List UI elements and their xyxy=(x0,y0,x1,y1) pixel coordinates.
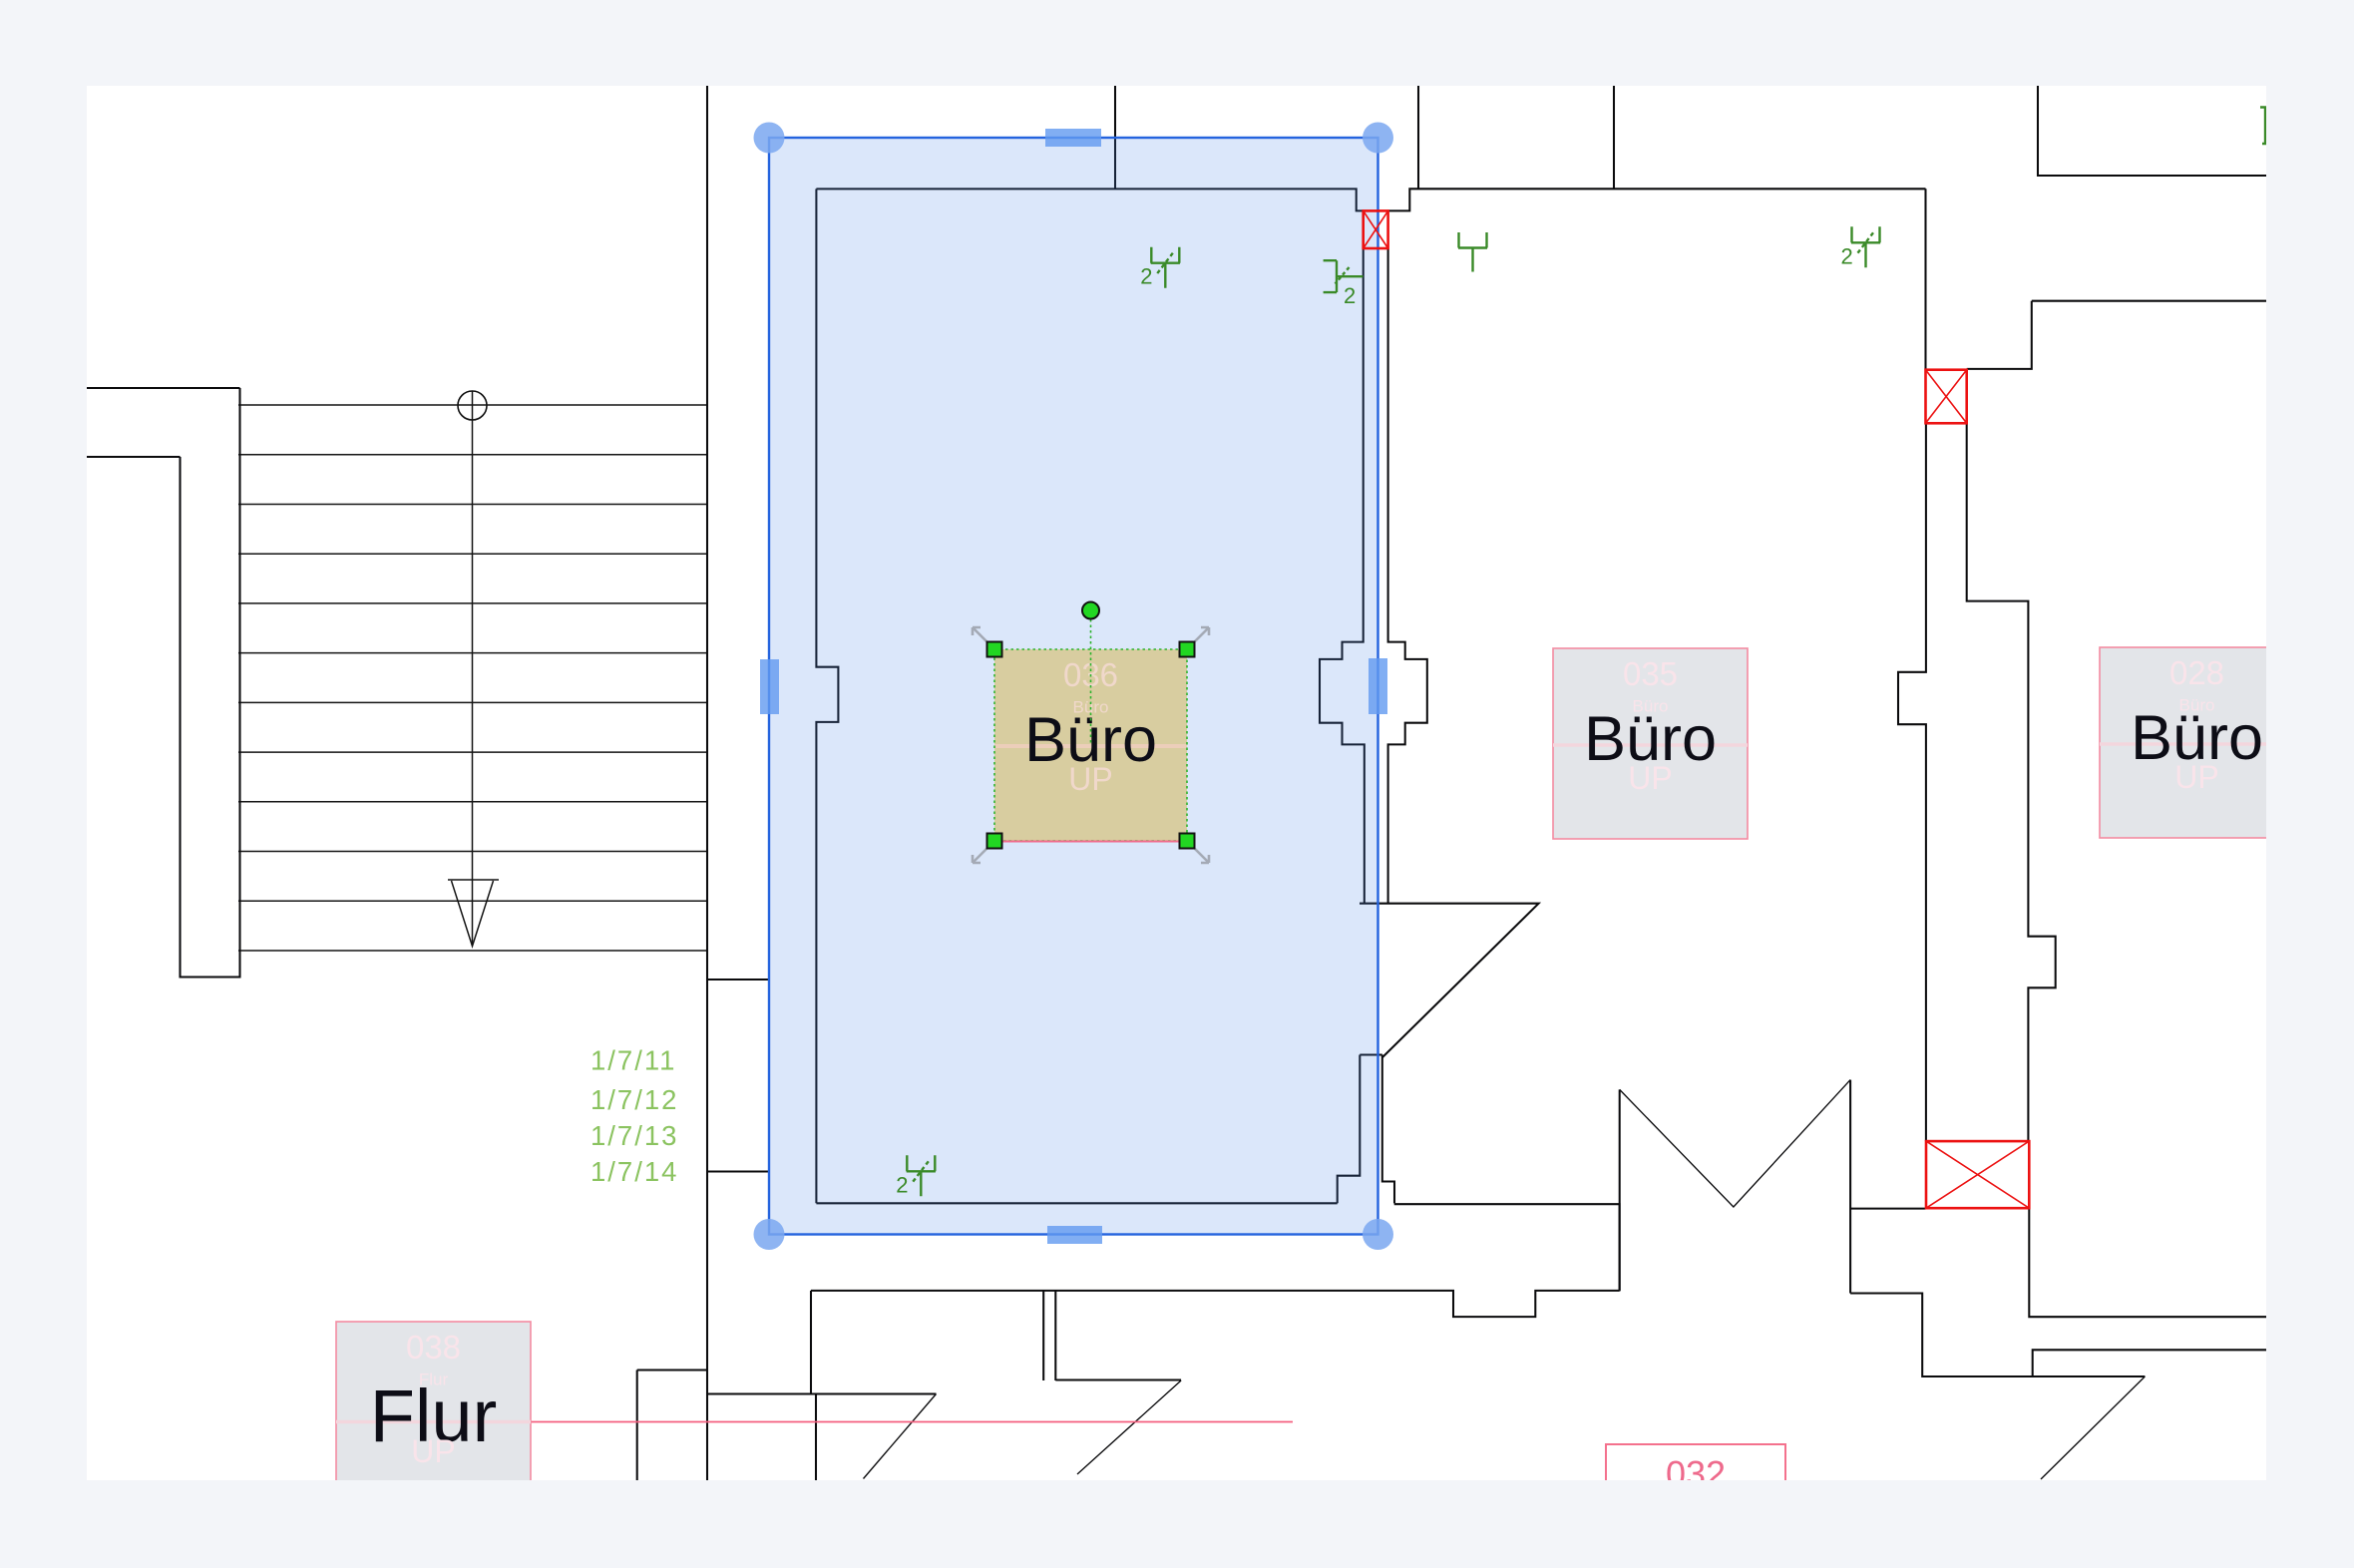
svg-text:2: 2 xyxy=(1140,264,1152,289)
svg-text:2: 2 xyxy=(896,1172,908,1197)
svg-text:UP: UP xyxy=(1068,761,1112,797)
svg-text:1/7/14: 1/7/14 xyxy=(590,1156,678,1187)
svg-text:035: 035 xyxy=(1623,655,1678,692)
svg-text:UP: UP xyxy=(1628,760,1672,796)
svg-text:UP: UP xyxy=(2174,759,2218,795)
svg-text:038: 038 xyxy=(406,1329,461,1366)
svg-text:UP: UP xyxy=(411,1433,455,1469)
svg-text:1/7/13: 1/7/13 xyxy=(590,1120,678,1151)
svg-text:2: 2 xyxy=(1841,243,1853,268)
svg-text:1/7/12: 1/7/12 xyxy=(590,1084,678,1115)
svg-text:1/7/11: 1/7/11 xyxy=(590,1045,676,1076)
svg-text:2: 2 xyxy=(1344,283,1356,308)
svg-text:028: 028 xyxy=(2169,654,2224,691)
